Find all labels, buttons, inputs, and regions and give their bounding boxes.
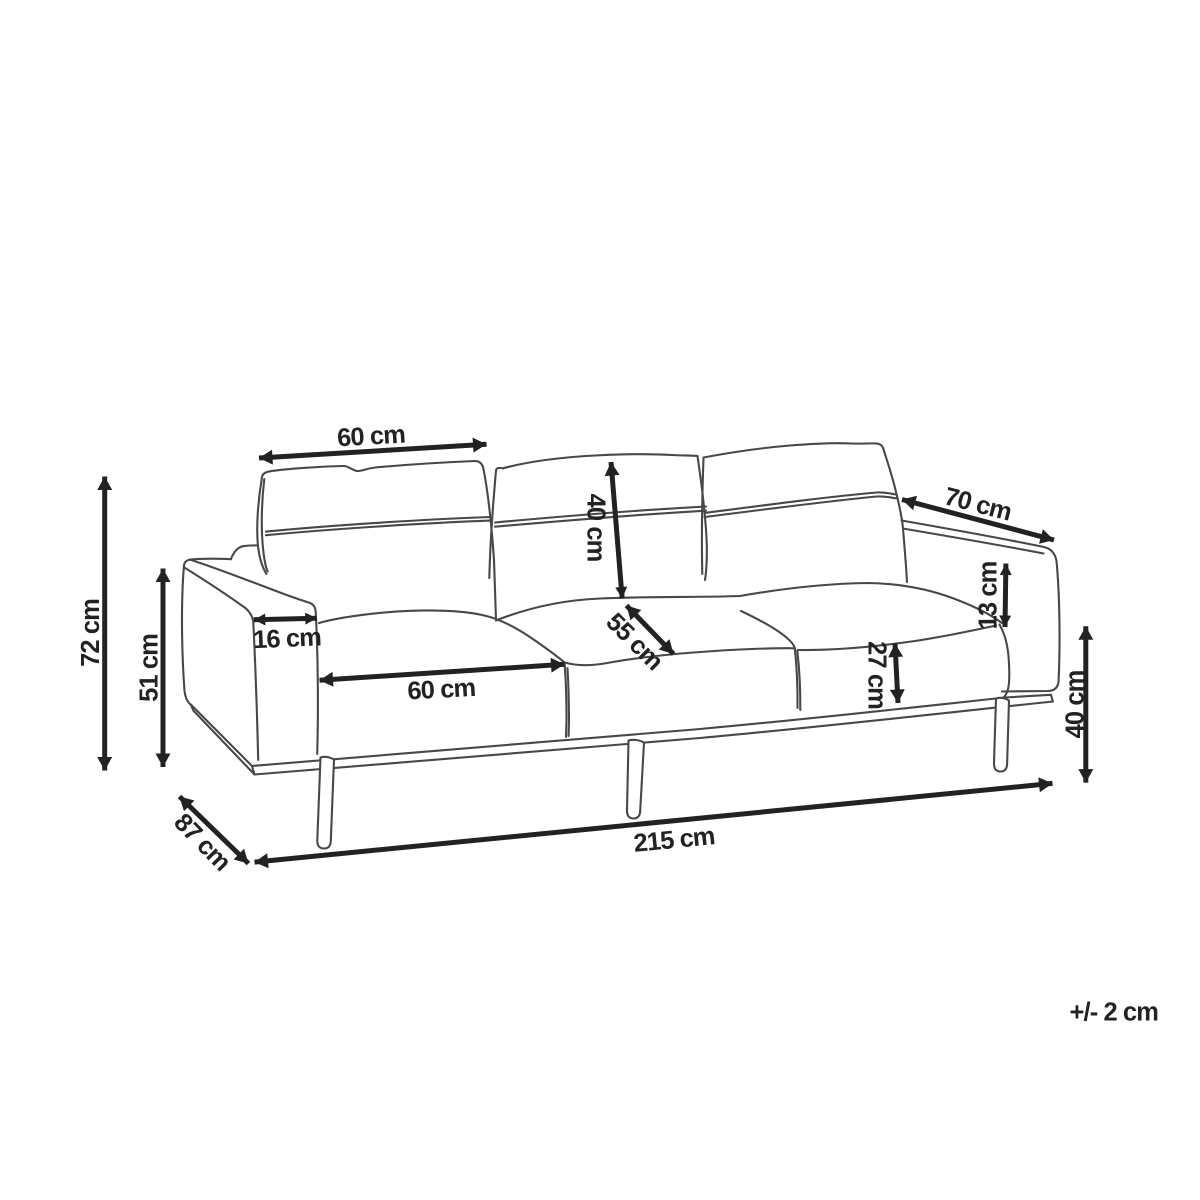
svg-text:60 cm: 60 cm [336, 421, 406, 453]
svg-text:51 cm: 51 cm [136, 634, 164, 702]
svg-text:72 cm: 72 cm [77, 599, 105, 667]
svg-text:+/- 2 cm: +/- 2 cm [1070, 999, 1159, 1027]
svg-text:60 cm: 60 cm [407, 674, 476, 706]
svg-text:13 cm: 13 cm [975, 561, 1003, 629]
svg-text:16 cm: 16 cm [253, 623, 322, 654]
svg-text:40 cm: 40 cm [1062, 670, 1090, 738]
svg-text:40 cm: 40 cm [582, 494, 610, 562]
svg-text:27 cm: 27 cm [863, 641, 891, 709]
